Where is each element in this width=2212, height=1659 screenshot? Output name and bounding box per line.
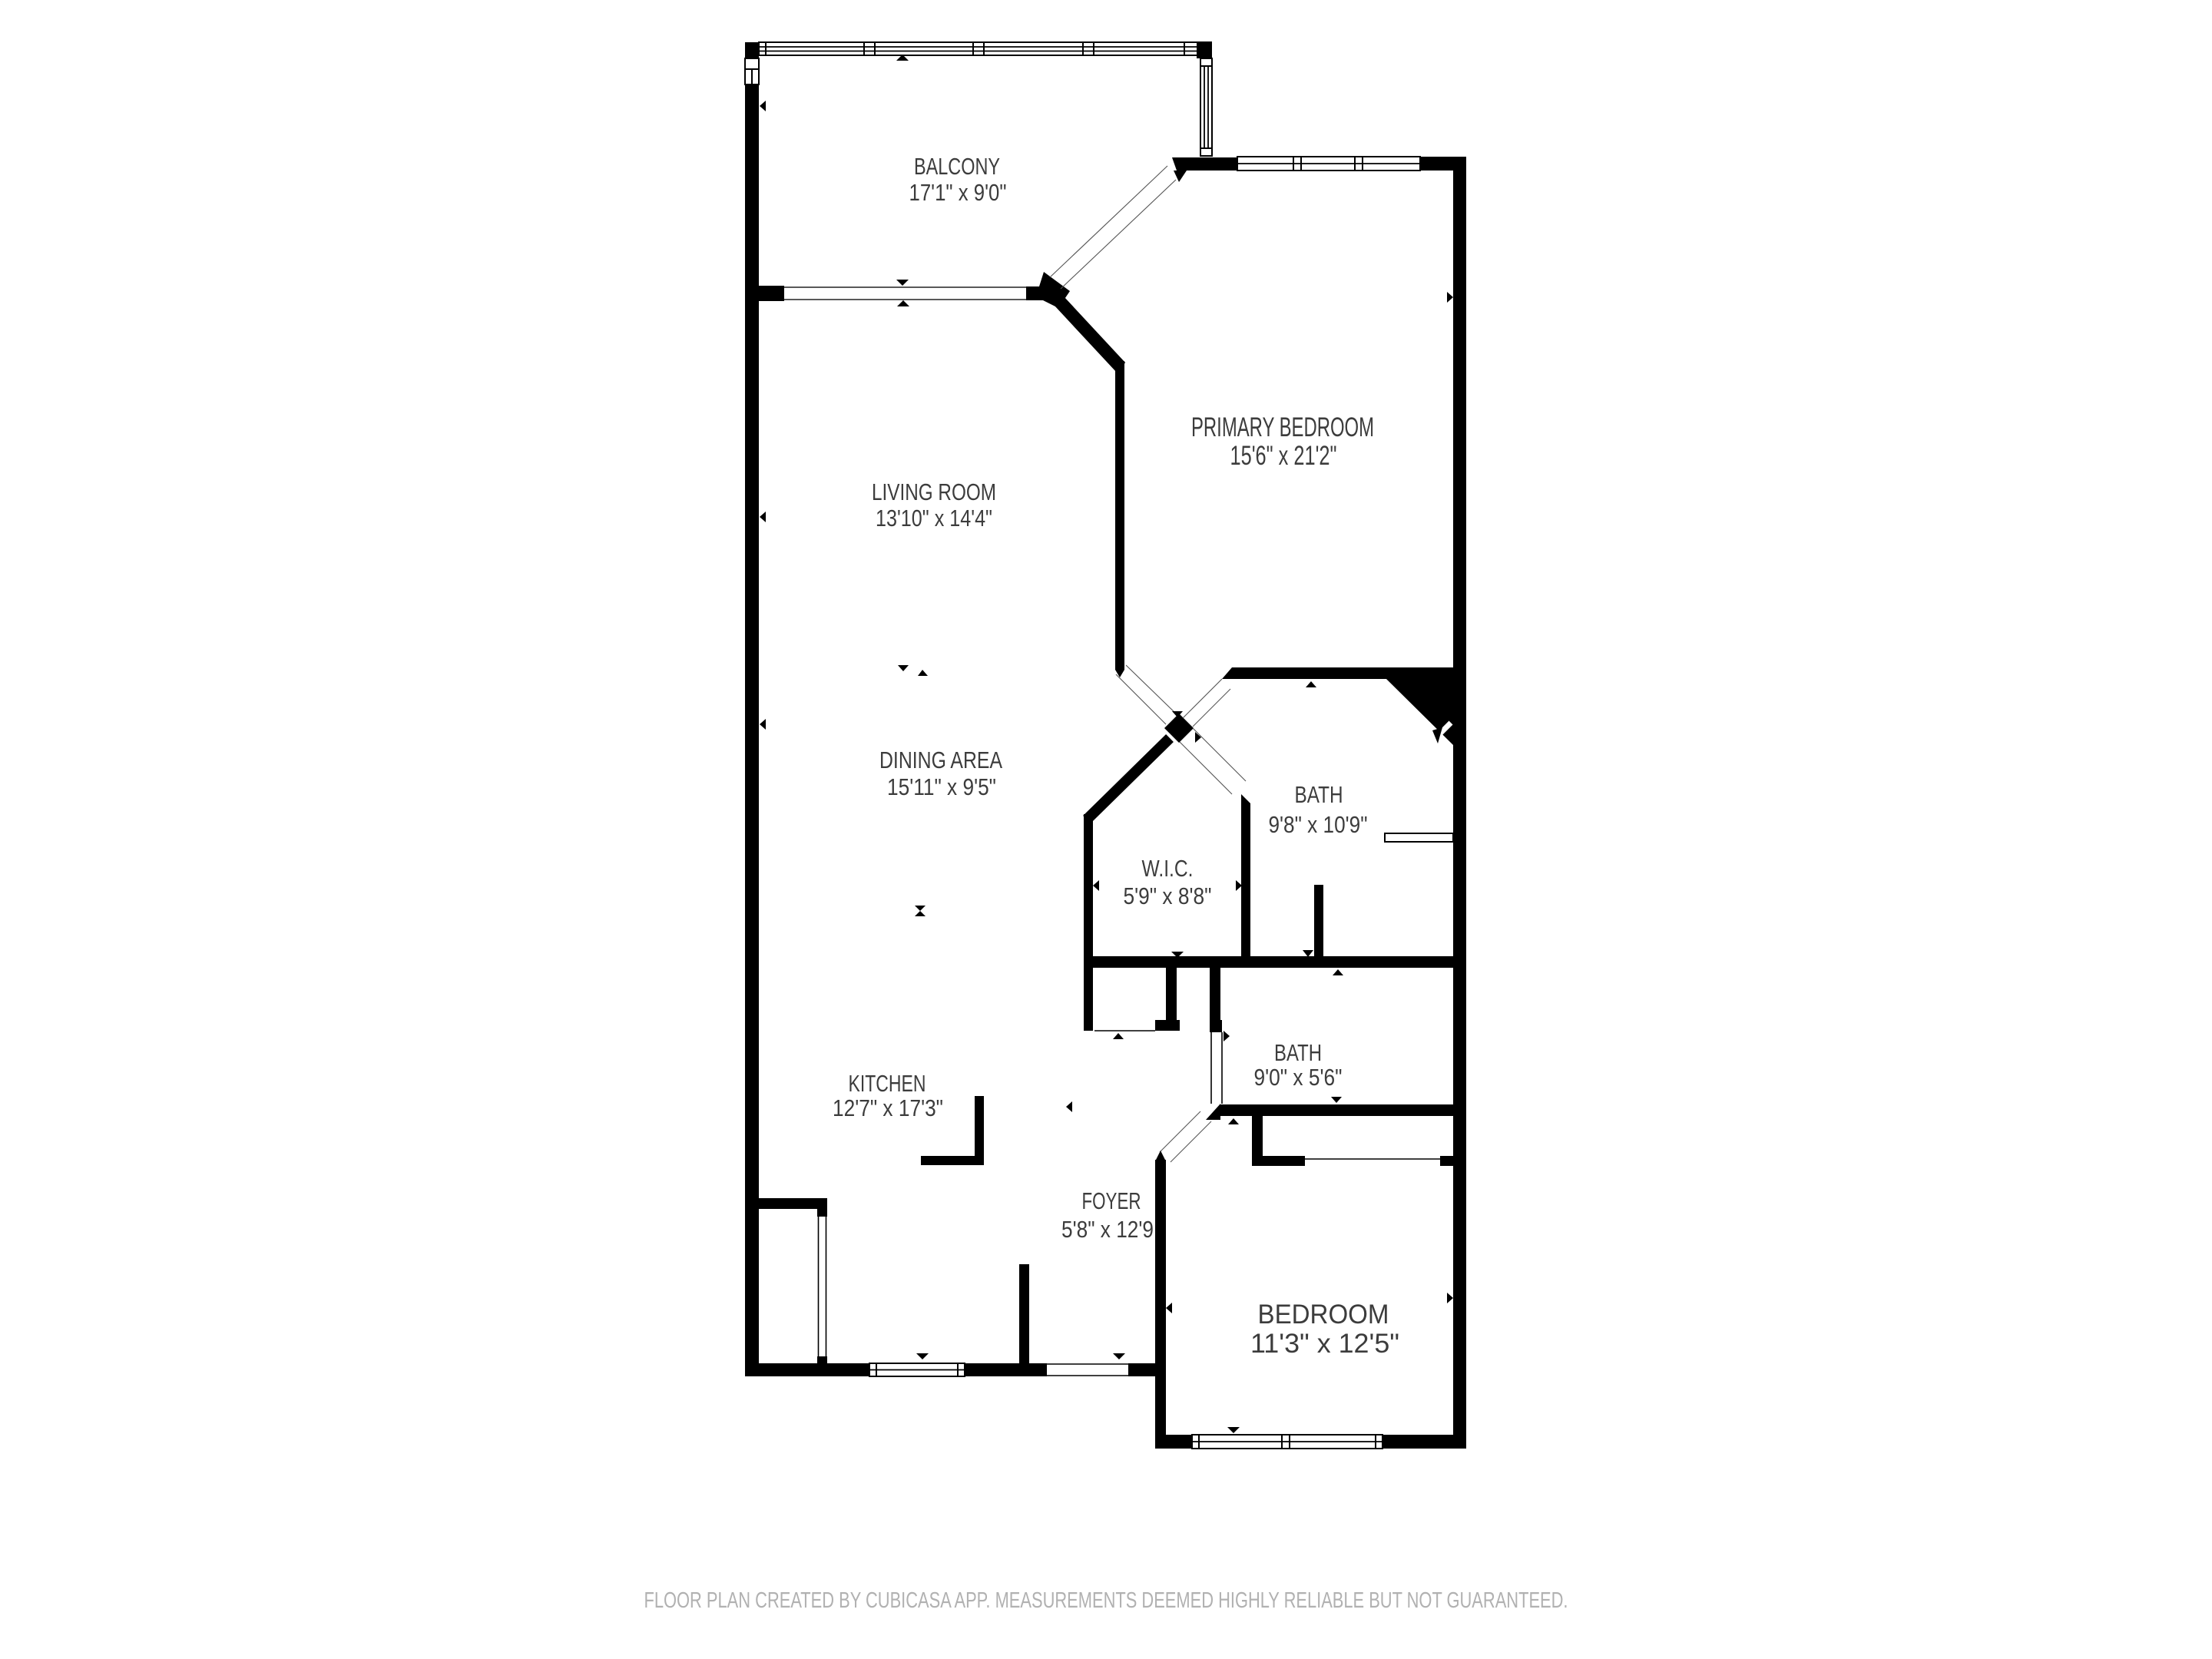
svg-text:BATH: BATH <box>1274 1039 1322 1066</box>
svg-text:DINING AREA: DINING AREA <box>879 747 1002 773</box>
svg-text:PRIMARY BEDROOM: PRIMARY BEDROOM <box>1191 412 1374 442</box>
svg-text:FLOOR PLAN CREATED BY CUBICASA: FLOOR PLAN CREATED BY CUBICASA APP. MEAS… <box>644 1588 1568 1613</box>
svg-text:15'6" x 21'2": 15'6" x 21'2" <box>1230 441 1337 471</box>
svg-text:LIVING ROOM: LIVING ROOM <box>872 478 996 505</box>
svg-text:15'11" x 9'5": 15'11" x 9'5" <box>887 773 996 800</box>
svg-text:BATH: BATH <box>1295 781 1343 808</box>
svg-text:FOYER: FOYER <box>1082 1187 1141 1214</box>
svg-text:12'7" x 17'3": 12'7" x 17'3" <box>833 1094 943 1121</box>
svg-text:5'8" x 12'9: 5'8" x 12'9 <box>1061 1216 1154 1243</box>
svg-text:9'0" x 5'6": 9'0" x 5'6" <box>1254 1064 1343 1091</box>
svg-text:13'10" x 14'4": 13'10" x 14'4" <box>876 505 992 531</box>
svg-text:W.I.C.: W.I.C. <box>1142 855 1194 882</box>
svg-text:KITCHEN: KITCHEN <box>849 1070 926 1097</box>
svg-text:BEDROOM: BEDROOM <box>1258 1300 1389 1330</box>
svg-text:5'9" x 8'8": 5'9" x 8'8" <box>1124 882 1212 909</box>
svg-text:17'1" x 9'0": 17'1" x 9'0" <box>909 179 1007 206</box>
svg-text:9'8" x 10'9": 9'8" x 10'9" <box>1269 811 1368 838</box>
svg-text:11'3" x 12'5": 11'3" x 12'5" <box>1250 1329 1399 1359</box>
svg-text:BALCONY: BALCONY <box>914 153 1000 180</box>
